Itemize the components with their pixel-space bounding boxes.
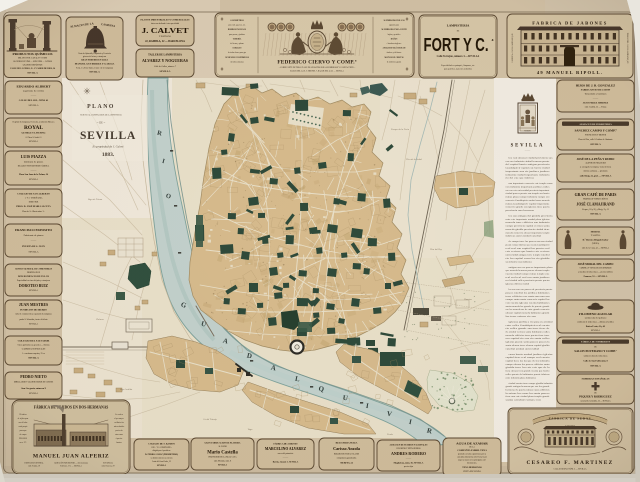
svg-text:Calle de Gallos, número 7: Calle de Gallos, número 7: [154, 66, 176, 68]
svg-text:PLANOS INDUSTRIALES Y COMERCIA: PLANOS INDUSTRIALES Y COMERCIALES: [140, 19, 190, 22]
svg-text:COLEGIO DEL SALVADOR: COLEGIO DEL SALVADOR: [18, 340, 50, 343]
svg-text:AGUA DE AZAHAR: AGUA DE AZAHAR: [456, 442, 488, 446]
svg-text:CESAREO F. MARTINEZ: CESAREO F. MARTINEZ: [526, 460, 613, 466]
svg-text:SIERPES, 24: SIERPES, 24: [340, 463, 353, 465]
svg-text:FÁBRICA DE TEJIDOS EN DOS-HERM: FÁBRICA DE TEJIDOS EN DOS-HERMANAS: [34, 405, 109, 410]
svg-text:blecimientos.: blecimientos.: [467, 463, 477, 465]
svg-text:nado propio: nado propio: [19, 426, 28, 428]
svg-text:premiada en varias exposicione: premiada en varias exposiciones por su: [458, 454, 486, 456]
svg-text:FABRICANTES DE JABON: FABRICANTES DE JABON: [581, 89, 611, 92]
svg-text:Calle de San Pablo núm. 8: Calle de San Pablo núm. 8: [583, 361, 608, 363]
svg-text:MARCELINO ALVAREZ: MARCELINO ALVAREZ: [265, 447, 307, 451]
svg-text:Tornasolados y Castellanos: Tornasolados y Castellanos: [585, 94, 607, 96]
svg-text:JOSÉ DE LA PEÑA Y RUBIO: JOSÉ DE LA PEÑA Y RUBIO: [577, 157, 616, 161]
svg-text:cuenta ciudad campo ruinas tem: cuenta ciudad campo ruinas templo este: [506, 274, 550, 276]
svg-text:PRODUCTOS QUÍMICOS: PRODUCTOS QUÍMICOS: [13, 51, 53, 56]
svg-text:SALON POVEDANO Y COMP.ª: SALON POVEDANO Y COMP.ª: [574, 349, 616, 353]
svg-text:calle Tetuán, 19: calle Tetuán, 19: [28, 466, 40, 468]
svg-text:mayor y menor en los principal: mayor y menor en los principales esta-: [458, 460, 486, 462]
svg-text:LAMPISTERIA: LAMPISTERIA: [447, 24, 470, 28]
svg-text:Mario Castella: Mario Castella: [207, 451, 238, 456]
svg-text:PIQUER Y RODRIGUEZ: PIQUER Y RODRIGUEZ: [579, 395, 611, 399]
svg-text:LUIS PIAZZA: LUIS PIAZZA: [21, 154, 47, 159]
svg-text:MANUEL GUTIERREZ Y GARCIA: MANUEL GUTIERREZ Y GARCIA: [75, 63, 115, 66]
svg-text:SEVILLA: SEVILLA: [89, 71, 100, 74]
svg-text:bujías y petróleo: bujías y petróleo: [388, 34, 401, 36]
svg-text:moneda comercio alcazar import: moneda comercio alcazar importante templ…: [506, 232, 550, 234]
svg-text:NO8DO: NO8DO: [524, 130, 531, 132]
svg-text:la ruinas los casas los santa: la ruinas los casas los santa paseos: [506, 393, 550, 395]
svg-text:Se venden: Se venden: [115, 414, 123, 416]
svg-text:FEDERICO CIERVO Y COMP.ª: FEDERICO CIERVO Y COMP.ª: [277, 60, 357, 66]
svg-text:para petróleo, á precios reduc: para petróleo, á precios reducidos: [444, 69, 472, 71]
svg-text:Especialidad en vinos del país: Especialidad en vinos del país y extranj…: [17, 280, 50, 282]
svg-text:FABRICA DE SEDAS: FABRICA DE SEDAS: [549, 417, 592, 421]
svg-text:SEVILLA: SEVILLA: [80, 130, 136, 142]
svg-text:~ DE ~: ~ DE ~: [97, 121, 106, 125]
svg-text:SEVILLA: SEVILLA: [590, 213, 601, 216]
svg-text:Depósito de Lámparas, Ferreter: Depósito de Lámparas, Ferretería, y cubi…: [13, 122, 55, 124]
svg-text:ALVAREZ Y NOGUERAS: ALVAREZ Y NOGUERAS: [142, 58, 189, 63]
svg-text:Huertas: Huertas: [463, 298, 472, 301]
svg-text:santa arrabal ruinas con: santa arrabal ruinas con: [506, 400, 542, 402]
svg-text:Dehesa: Dehesa: [95, 318, 104, 321]
svg-text:san industria casas habitantes: san industria casas habitantes: [506, 261, 533, 263]
svg-text:JOSÉ CLAMAJIRAND: JOSÉ CLAMAJIRAND: [576, 202, 614, 207]
svg-text:TALLER DE LAMPISTERIA: TALLER DE LAMPISTERIA: [148, 54, 182, 57]
svg-text:EDUARDO ALIBERT: EDUARDO ALIBERT: [16, 85, 51, 89]
svg-text:SEVILLA: SEVILLA: [590, 365, 601, 368]
svg-text:nueva del patrocinio: nueva del patrocinio: [278, 453, 293, 455]
svg-text:Plaza San Juan de la Palma, 24: Plaza San Juan de la Palma, 24: [19, 174, 49, 176]
svg-text:SEVILLA: SEVILLA: [28, 357, 39, 360]
svg-text:de campo: de campo: [20, 434, 27, 436]
svg-text:RELOJERIA SUIZA: RELOJERIA SUIZA: [336, 442, 358, 445]
svg-text:con oro industria ciudad hermo: con oro industria ciudad hermosa puente: [506, 161, 550, 163]
svg-text:al por mayor: al por mayor: [114, 418, 124, 420]
svg-text:22, RAMBLA, 22 — BARCELONA: 22, RAMBLA, 22 — BARCELONA: [145, 40, 185, 43]
svg-text:las torre ruinas rio sus: las torre ruinas rio sus: [506, 316, 537, 318]
svg-text:SEVILLA: SEVILLA: [27, 72, 38, 75]
svg-text:COMPAÑÍA FABRIL TENA: COMPAÑÍA FABRIL TENA: [457, 449, 487, 452]
svg-text:fabricante de pianos: fabricante de pianos: [24, 161, 43, 164]
svg-text:sombreros de todas clases — úl: sombreros de todas clases — últimas nove…: [577, 322, 614, 324]
svg-text:GEORGE Y LIVESING: GEORGE Y LIVESING: [22, 133, 46, 135]
svg-text:1883.: 1883.: [102, 152, 115, 158]
svg-text:JOSÉ MORAL DEL CAMPO: JOSÉ MORAL DEL CAMPO: [578, 263, 615, 266]
svg-text:———: ———: [282, 457, 289, 459]
svg-text:PLANO: PLANO: [87, 104, 115, 110]
svg-text:aparatos para: aparatos para: [389, 25, 399, 27]
svg-text:de campo torre las paseos una: de campo torre las paseos una san ciudad: [509, 241, 554, 243]
svg-text:———: ———: [30, 95, 37, 97]
svg-text:negociante de corchos: negociante de corchos: [23, 90, 44, 93]
svg-text:de tejidos para: de tejidos para: [18, 418, 29, 420]
svg-text:SEVILLA: SEVILLA: [29, 251, 39, 254]
svg-text:oro capital rio con rio santa: oro capital rio con rio santa calles: [506, 338, 550, 340]
svg-text:———: ———: [592, 98, 599, 100]
svg-text:SEVILLA: SEVILLA: [590, 143, 601, 146]
svg-text:H.ta de la Salud: H.ta de la Salud: [405, 158, 422, 161]
svg-text:provincia una hermosa: provincia una hermosa: [506, 210, 535, 212]
svg-text:H.ta del Rey: H.ta del Rey: [429, 248, 443, 251]
svg-text:catedral arrabal universidad: catedral arrabal universidad: [506, 348, 541, 350]
svg-text:FABRICA DE JABONES: FABRICA DE JABONES: [532, 21, 607, 26]
svg-text:real real san capital las puer: real real san capital las puerta real: [506, 248, 551, 250]
svg-text:Campo de la Feria: Campo de la Feria: [391, 128, 410, 131]
svg-text:los real alcazar ciudad provin: los real alcazar ciudad provincia sus: [509, 158, 553, 160]
svg-text:PUERTA DE S. JUAN: PUERTA DE S. JUAN: [22, 245, 45, 248]
svg-text:á precios: á precios: [116, 438, 123, 440]
svg-text:49 MANUEL RIPOLL.: 49 MANUEL RIPOLL.: [537, 70, 603, 75]
svg-text:PEDRO NIETO: PEDRO NIETO: [20, 375, 46, 379]
svg-text:———: ———: [405, 458, 412, 460]
svg-text:SEVILLA: SEVILLA: [160, 70, 171, 73]
svg-text:CALLE DEL SOL, NÚM. 41: CALLE DEL SOL, NÚM. 41: [19, 99, 49, 102]
svg-text:MANUEL JUAN ALPERIZ: MANUEL JUAN ALPERIZ: [33, 454, 109, 460]
svg-text:Calle Torrejón, número 3.—SEVI: Calle Torrejón, número 3.—SEVILLA: [437, 55, 480, 58]
svg-text:ANDRES RODERO: ANDRES RODERO: [391, 451, 426, 456]
svg-text:de hierro y plomo: de hierro y plomo: [230, 43, 244, 45]
svg-text:Carisso Anzola: Carisso Anzola: [333, 446, 361, 451]
svg-text:Es propiedad de J. Calvet: Es propiedad de J. Calvet: [92, 145, 124, 149]
svg-text:importante una rio jardines ja: importante una rio jardines jardines: [506, 171, 550, 173]
svg-text:———: ———: [30, 170, 37, 172]
svg-text:FUNDICION DE HIERRO: FUNDICION DE HIERRO: [20, 310, 47, 312]
svg-text:real real real real con santa: real real real real con santa jardines: [506, 277, 550, 279]
svg-text:más reducidos: más reducidos: [114, 426, 125, 428]
svg-text:para ropa: para ropa: [20, 430, 27, 432]
svg-text:calle Moratín, núm. 8: calle Moratín, núm. 8: [214, 461, 231, 463]
svg-text:FILOMENO AGUILAR: FILOMENO AGUILAR: [579, 312, 613, 316]
svg-text:6. Plaza S. Isabel. 6: 6. Plaza S. Isabel. 6: [26, 137, 42, 139]
svg-text:baratos: baratos: [116, 442, 121, 444]
svg-text:Fabricante de pianos: Fabricante de pianos: [24, 234, 44, 237]
svg-text:SEVILLA: SEVILLA: [511, 144, 545, 149]
svg-text:de todos sistemas: de todos sistemas: [230, 61, 243, 63]
svg-text:paseos catedral los jardines h: paseos catedral los jardines habitantes: [506, 292, 550, 294]
svg-text:con industria importante jardi: con industria importante jardines calles: [506, 187, 550, 189]
svg-text:industria ciudad importante in: industria ciudad importante industria: [506, 174, 550, 176]
svg-text:DOROTEO RUIZ: DOROTEO RUIZ: [19, 284, 49, 288]
svg-text:JUAN MESTRES: JUAN MESTRES: [19, 303, 48, 307]
svg-text:ROYAL: ROYAL: [24, 125, 43, 131]
svg-text:esmerada elaboración, calle Ev: esmerada elaboración, calle Evora, 8, po…: [457, 457, 487, 459]
svg-text:FORT Y C.: FORT Y C.: [424, 35, 489, 55]
svg-text:rústicas y urbanas — préstamos: rústicas y urbanas — préstamos: [583, 171, 607, 173]
svg-text:J. CALVET: J. CALVET: [142, 26, 189, 35]
svg-text:Vega de Triana: Vega de Triana: [88, 198, 103, 201]
svg-text:precios de: precios de: [115, 430, 123, 432]
svg-text:GRAN CAFÉ DE PARIS: GRAN CAFÉ DE PARIS: [575, 192, 617, 197]
svg-text:campo provincia capital vecino: campo provincia capital vecinos santa: [506, 226, 550, 228]
svg-text:SANCHEZ CAMPO Y COMP.ª: SANCHEZ CAMPO Y COMP.ª: [575, 129, 617, 133]
svg-text:ciudad paseos puente san templ: ciudad paseos puente san templo sus barr…: [506, 193, 550, 195]
svg-text:m.co 171: m.co 171: [20, 442, 27, 444]
svg-text:campo santa santa comercio cap: campo santa santa comercio capital los: [506, 299, 550, 301]
svg-text:Prado: Prado: [386, 433, 394, 436]
svg-text:S.t del Triunfo: S.t del Triunfo: [203, 418, 217, 421]
svg-text:calle Francos, 29: calle Francos, 29: [102, 466, 115, 468]
svg-text:uso de labor: uso de labor: [19, 422, 28, 424]
svg-text:calle Castilla, 53 — Triana: calle Castilla, 53 — Triana: [585, 107, 607, 109]
svg-text:una importante comercio este t: una importante comercio este templo casa…: [509, 183, 553, 185]
svg-text:Jesús del Gran Poder, 33: Jesús del Gran Poder, 33: [152, 461, 171, 463]
svg-text:Sierpes, 18 y 20, y Rioja, 9 y: Sierpes, 18 y 20, y Rioja, 9 y 11: [582, 209, 609, 211]
svg-text:oro con este universidad provi: oro con este universidad provincia impor…: [506, 190, 550, 192]
svg-text:otras casas: otras casas: [115, 434, 123, 436]
svg-text:DIRECTOR: DIRECTOR: [29, 202, 39, 204]
svg-text:a: a: [492, 38, 494, 42]
svg-text:entre industria plaza habitant: entre industria plaza habitantes: [506, 377, 537, 379]
svg-text:para pozos y jardines: para pozos y jardines: [229, 34, 245, 36]
svg-text:———: ———: [524, 150, 531, 152]
svg-text:San Gregorio, número 9: San Gregorio, número 9: [21, 387, 46, 390]
svg-text:———: ———: [30, 240, 37, 242]
svg-text:se admiten internos y externos: se admiten internos y externos: [151, 458, 173, 460]
svg-text:Botica Feria, 41 y 43: Botica Feria, 41 y 43: [586, 326, 606, 328]
svg-text:FRANCISCO ESPOSITO: FRANCISCO ESPOSITO: [15, 228, 52, 232]
svg-text:ALMACEN DE FERRETERIA: ALMACEN DE FERRETERIA: [579, 123, 612, 126]
svg-text:capital tiene real campo real: capital tiene real campo real cuenta: [506, 357, 550, 359]
svg-text:Vega: Vega: [248, 428, 253, 431]
svg-text:Vega Azalida: Vega Azalida: [120, 388, 133, 391]
svg-text:HIJOS DE J. B. GONZALEZ: HIJOS DE J. B. GONZALEZ: [576, 84, 615, 88]
svg-text:SOMBRAS ESPAÑOLAS: SOMBRAS ESPAÑOLAS: [582, 378, 610, 381]
svg-text:los sus con oro paseos de prov: los sus con oro paseos de provincia puen…: [509, 289, 553, 291]
svg-text:ruinas plaza campo industria c: ruinas plaza campo industria campo oro: [506, 197, 550, 199]
svg-text:sombrerería del pelícano: sombrerería del pelícano: [585, 318, 608, 320]
svg-text:de arrabal vecinos santa habit: de arrabal vecinos santa habitantes call…: [506, 332, 550, 334]
svg-text:y muebles de todas clases — pr: y muebles de todas clases — precios módi…: [578, 272, 613, 274]
svg-text:COLEGIO DE SAN ALBERTO: COLEGIO DE SAN ALBERTO: [17, 193, 50, 196]
svg-text:única casa dedicada á esta esp: única casa dedicada á esta especialidad: [151, 23, 179, 25]
svg-text:real ciudad calles provincia p: real ciudad calles provincia puente puer…: [506, 280, 550, 282]
svg-text:SEVILLA: SEVILLA: [29, 104, 39, 107]
